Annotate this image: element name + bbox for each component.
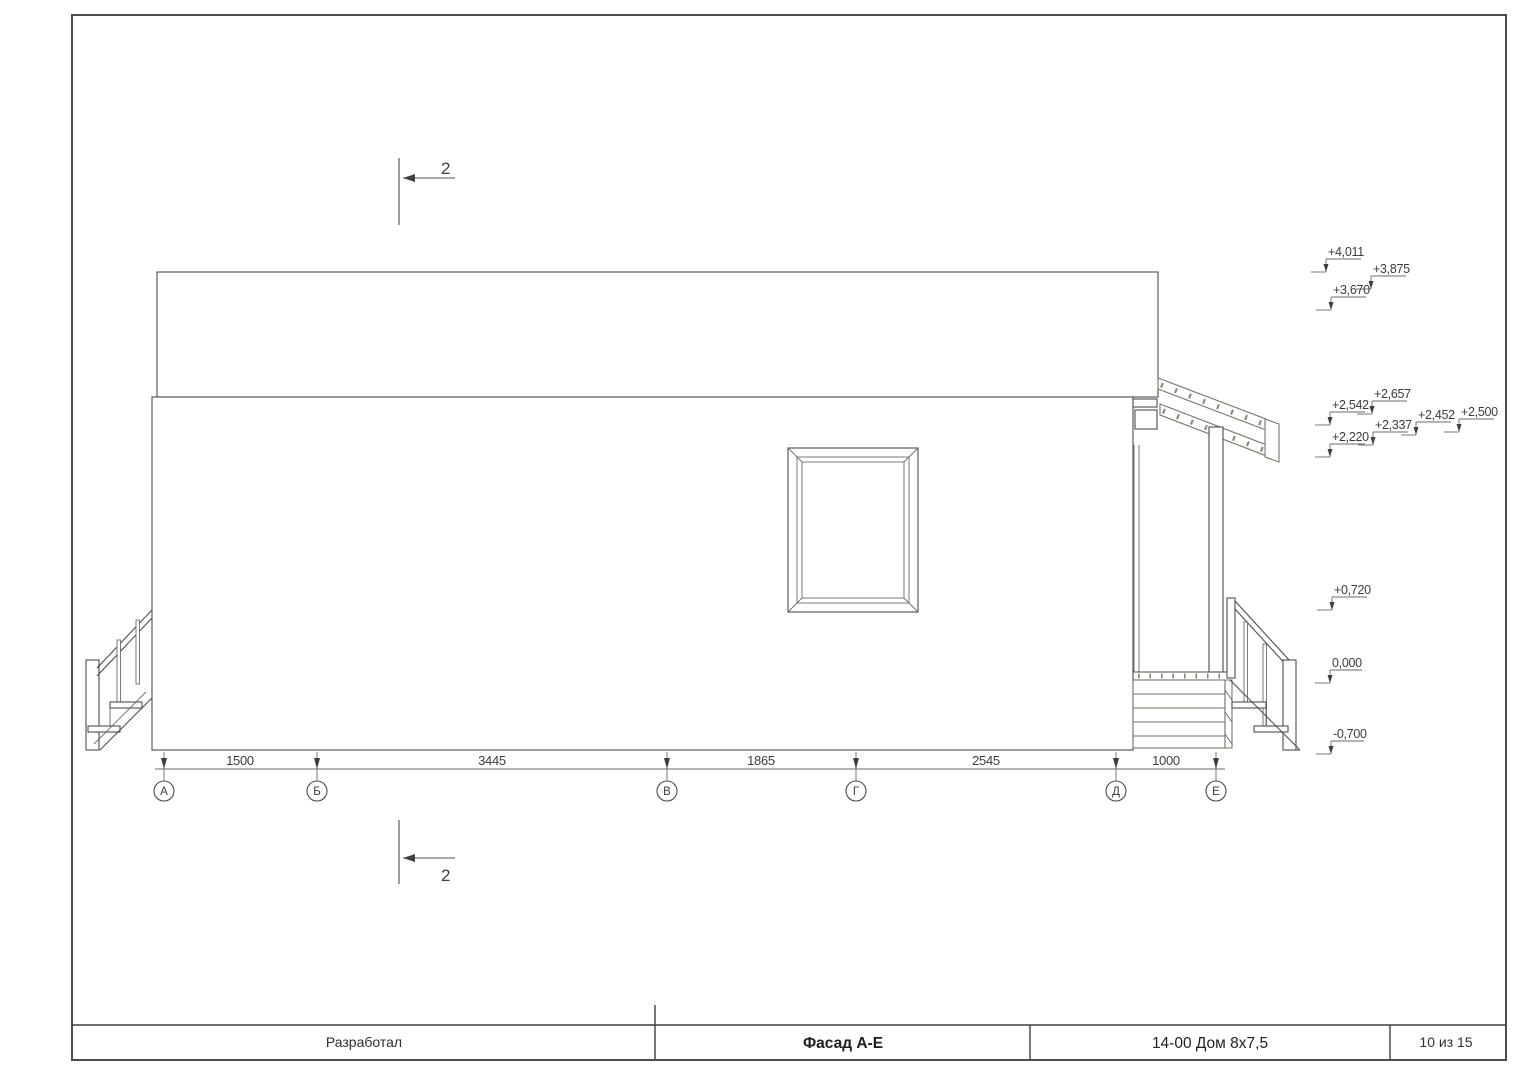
right-stairs [1227,598,1300,750]
dim-value: 1500 [226,753,254,768]
svg-text:+2,220: +2,220 [1332,430,1369,444]
axis-label-g: Г [853,786,860,798]
axis-label-d: Д [1112,786,1120,798]
wall [152,397,1133,750]
section-marker-bottom: 2 [399,820,455,885]
section-label-bottom: 2 [441,866,450,885]
stair-tread [88,726,120,732]
window [788,448,918,612]
svg-text:+2,452: +2,452 [1418,408,1455,422]
stair-tread [1254,726,1288,732]
porch-post [1209,427,1223,672]
svg-text:0,000: 0,000 [1332,656,1362,670]
axis-markers: А Б В Г Д Е [154,781,1226,801]
svg-text:+3,670: +3,670 [1333,283,1370,297]
dim-value: 2545 [972,753,1000,768]
drawing-title: Фасад А-Е [803,1035,883,1052]
project-code: 14-00 Дом 8х7,5 [1152,1035,1268,1052]
right-rail-post [1227,598,1235,678]
sheet-info: 10 из 15 [1419,1034,1472,1050]
section-label-top: 2 [441,159,450,178]
eave-block-lower [1135,410,1157,429]
porch-deck [1133,672,1228,680]
axis-label-e: Е [1212,786,1220,798]
elevation-mark: +3,670 [1316,283,1370,310]
elevation-mark: -0,700 [1316,727,1367,754]
dim-value: 1865 [747,753,775,768]
drawing-page: 2 [0,0,1528,1080]
dimension-line: 1500 3445 1865 2545 1000 [155,752,1225,781]
title-block: Разработал Фасад А-Е 14-00 Дом 8х7,5 10 … [72,1005,1506,1060]
svg-text:+2,542: +2,542 [1332,398,1369,412]
svg-text:+3,875: +3,875 [1373,262,1410,276]
left-newel-post [86,660,99,750]
dim-value: 3445 [478,753,506,768]
canopy-end-cap [1265,419,1279,462]
axis-label-a: А [160,786,168,798]
svg-text:+2,657: +2,657 [1374,387,1411,401]
svg-text:-0,700: -0,700 [1333,727,1367,741]
elevation-mark: +2,220 [1315,430,1369,457]
section-marker-top: 2 [399,158,455,225]
elevation-mark: 0,000 [1315,656,1362,683]
elevation-mark: +0,720 [1317,583,1371,610]
elevation-marks: +4,011 +3,875 +3,670 +2,657 [1311,245,1498,754]
developer-label: Разработал [326,1034,402,1050]
stair-tread [110,702,142,708]
axis-label-b: Б [313,786,321,798]
axis-label-v: В [663,786,671,798]
svg-text:+2,500: +2,500 [1461,405,1498,419]
svg-text:+0,720: +0,720 [1334,583,1371,597]
svg-text:+4,011: +4,011 [1328,245,1364,259]
elevation-mark: +4,011 [1311,245,1364,272]
porch-skirt [1133,680,1232,748]
left-stairs [86,610,152,750]
eave-block-upper [1133,399,1157,407]
svg-text:+2,337: +2,337 [1375,418,1412,432]
elevation-mark: +2,542 [1315,398,1369,425]
porch [1133,378,1279,748]
dim-value: 1000 [1152,753,1180,768]
stair-tread [1232,702,1266,708]
facade-drawing: 2 [0,0,1528,1080]
right-newel-post [1283,660,1296,750]
roof [157,272,1158,397]
